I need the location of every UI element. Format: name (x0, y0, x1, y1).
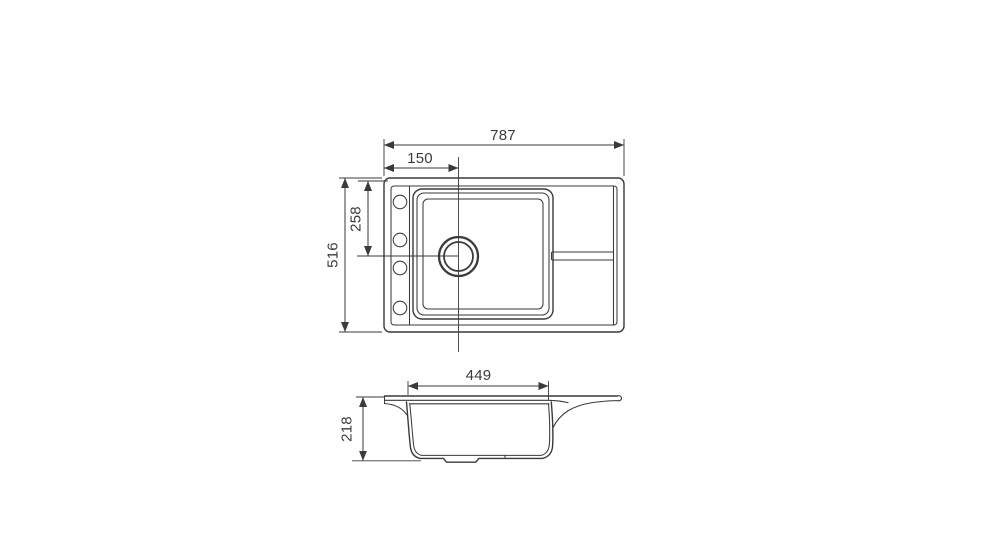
bowl-outline-mid (417, 193, 549, 315)
tap-hole-3 (393, 261, 407, 275)
sink-technical-drawing: 787 150 516 258 (0, 0, 1000, 550)
top-view (357, 157, 624, 352)
section-left-fillet (385, 404, 408, 416)
section-bowl-outer-profile (407, 402, 553, 462)
section-drainboard-tip (618, 396, 622, 401)
top-view-inner-rim (391, 186, 617, 325)
section-rim-underside-line (385, 400, 569, 402)
tap-hole-4 (393, 301, 407, 315)
dim-label-drain-offset-x: 150 (407, 150, 433, 167)
tap-hole-1 (393, 195, 407, 209)
section-drainboard-underside (553, 401, 618, 428)
drawing-canvas: 787 150 516 258 (0, 0, 1000, 550)
dim-label-bowl-width: 449 (466, 367, 492, 384)
bowl-outline-outer (413, 189, 553, 319)
section-bowl-inner-profile (410, 404, 550, 456)
top-view-dimensions: 787 150 516 258 (325, 127, 625, 332)
dim-label-overall-width: 787 (490, 127, 516, 144)
tap-hole-2 (393, 233, 407, 247)
accessory-rail-groove (552, 252, 614, 260)
dim-label-bowl-depth: 218 (339, 416, 356, 442)
section-view (385, 396, 622, 463)
dim-label-drain-offset-y: 258 (348, 206, 365, 232)
bowl-outline-bottom (423, 199, 543, 309)
dim-label-overall-depth: 516 (325, 242, 342, 268)
section-view-dimensions: 449 218 (339, 367, 549, 461)
